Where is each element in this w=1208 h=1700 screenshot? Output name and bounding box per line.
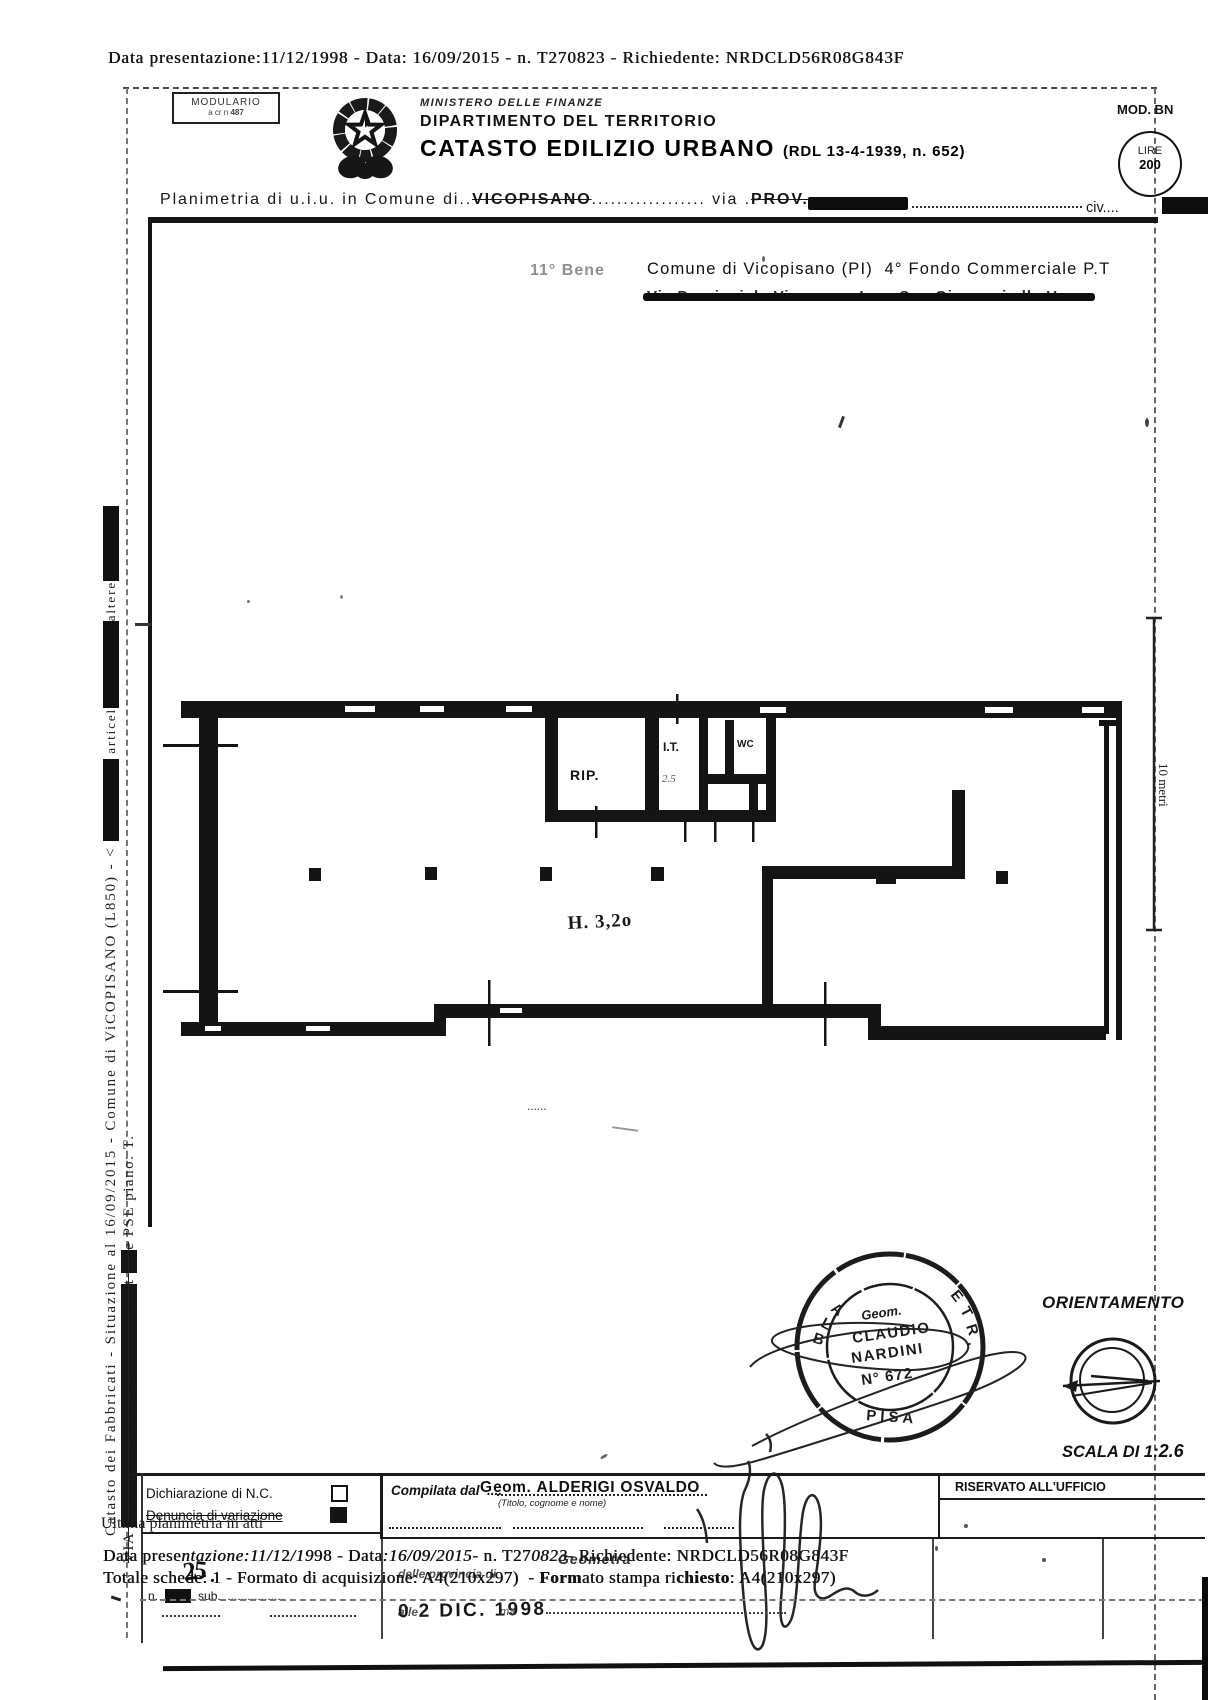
svg-text:2.5: 2.5: [662, 773, 676, 785]
svg-text:T: T: [956, 1304, 975, 1320]
svg-text:......: ......: [527, 1098, 547, 1113]
svg-text:Geom.: Geom.: [860, 1302, 902, 1322]
svg-text:WC: WC: [737, 739, 754, 750]
svg-text:RIP.: RIP.: [570, 767, 599, 783]
svg-text:R: R: [962, 1322, 982, 1338]
svg-text:H. 3,2o: H. 3,2o: [567, 910, 633, 934]
svg-text:E: E: [947, 1287, 967, 1305]
svg-text:I.T.: I.T.: [663, 740, 679, 754]
